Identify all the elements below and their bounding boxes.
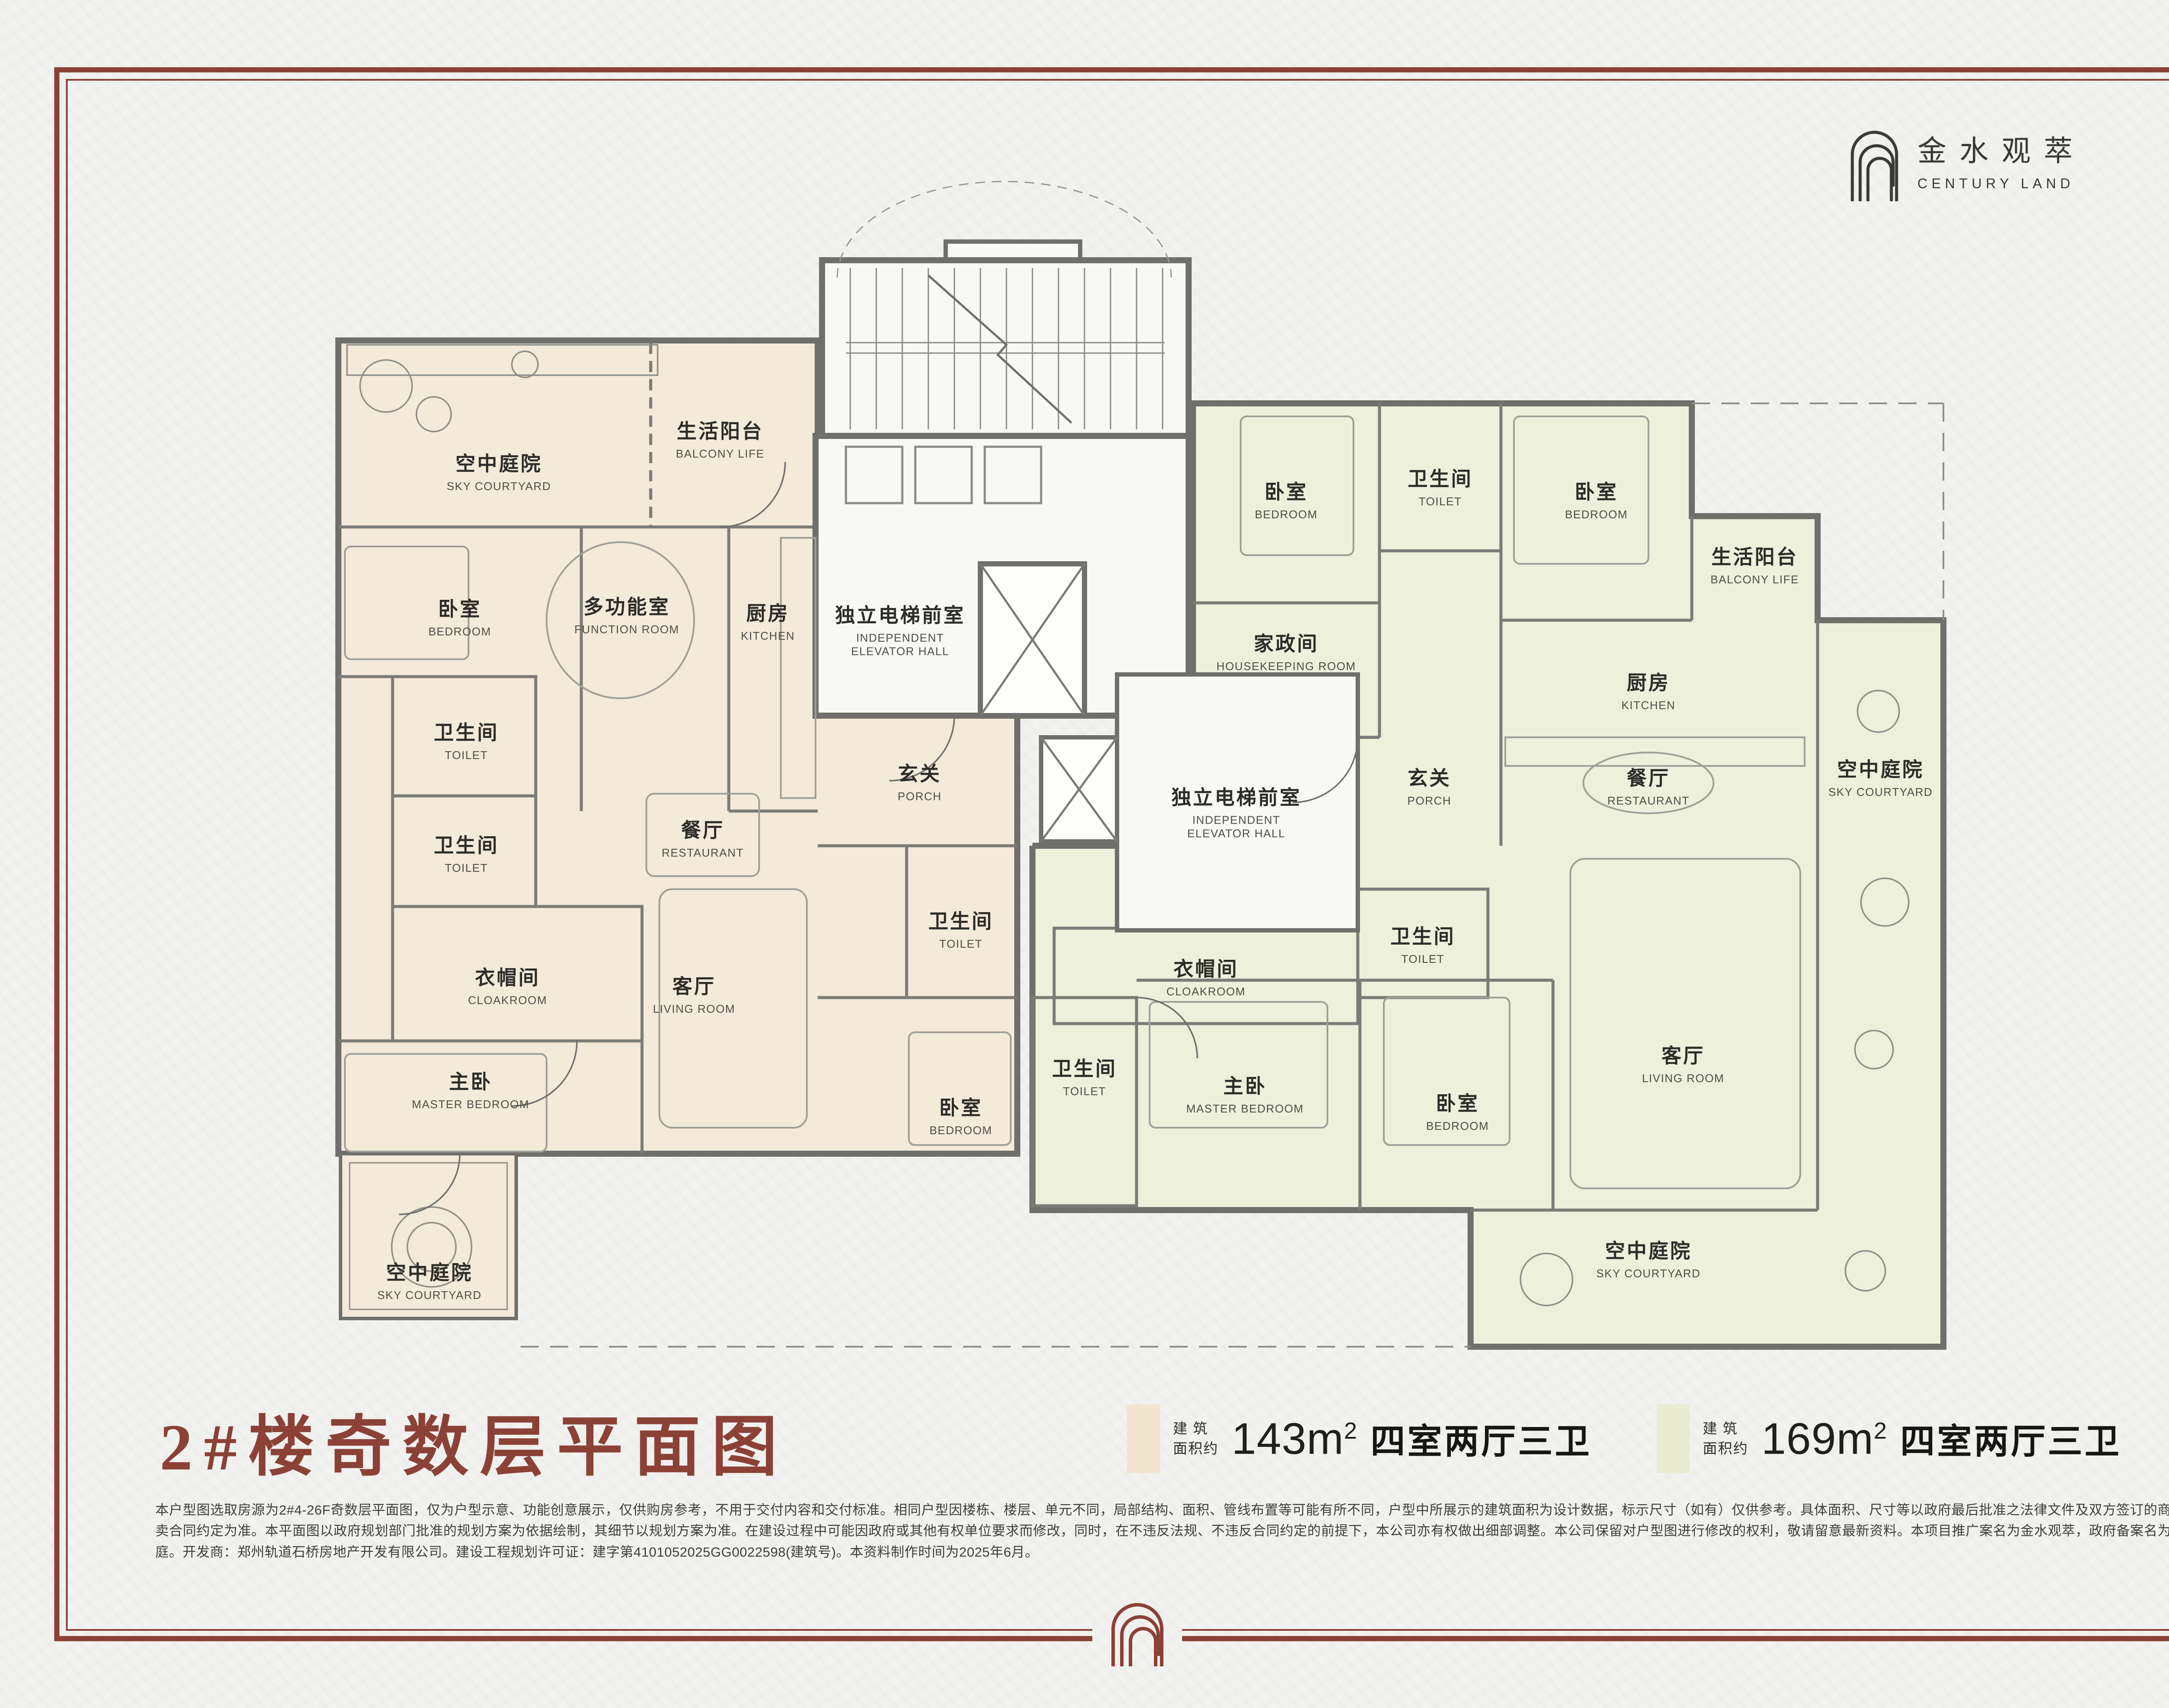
legend-layout-143: 四室两厅三卫 [1370, 1414, 1592, 1464]
bottom-arch-logo [1109, 1599, 1166, 1668]
legend-area-169: 169m2 [1761, 1414, 1887, 1464]
page-title: 2#楼奇数层平面图 [160, 1393, 789, 1489]
legend-item-169: 建 筑 面积约 169m2 四室两厅三卫 [1657, 1404, 2121, 1473]
elevator-shaft-a [980, 564, 1084, 716]
legend-swatch-143 [1127, 1404, 1160, 1473]
legend-swatch-169 [1657, 1404, 1690, 1473]
core-elevator-hall-right [1117, 674, 1358, 930]
core-staircase [822, 181, 1189, 436]
legend: 建 筑 面积约 143m2 四室两厅三卫 建 筑 面积约 169m2 四室两厅三… [1127, 1404, 2121, 1473]
legend-area-value: 143m [1232, 1414, 1344, 1463]
legend-area-value: 169m [1761, 1414, 1874, 1463]
disclaimer-text: 本户型图选取房源为2#4-26F奇数层平面图，仅为户型示意、功能创意展示，仅供购… [155, 1500, 2169, 1563]
legend-area-143: 143m2 [1232, 1414, 1357, 1464]
legend-layout-169: 四室两厅三卫 [1900, 1414, 2121, 1464]
legend-prefix-143: 建 筑 面积约 [1173, 1419, 1219, 1459]
legend-item-143: 建 筑 面积约 143m2 四室两厅三卫 [1127, 1404, 1592, 1473]
elevator-shaft-b [1041, 737, 1117, 841]
floorplan-poster: 金水观萃 CENTURY LAND [0, 0, 2169, 1708]
legend-prefix-169: 建 筑 面积约 [1703, 1419, 1748, 1459]
legend-area-sup: 2 [1874, 1418, 1887, 1444]
legend-area-sup: 2 [1344, 1418, 1357, 1444]
